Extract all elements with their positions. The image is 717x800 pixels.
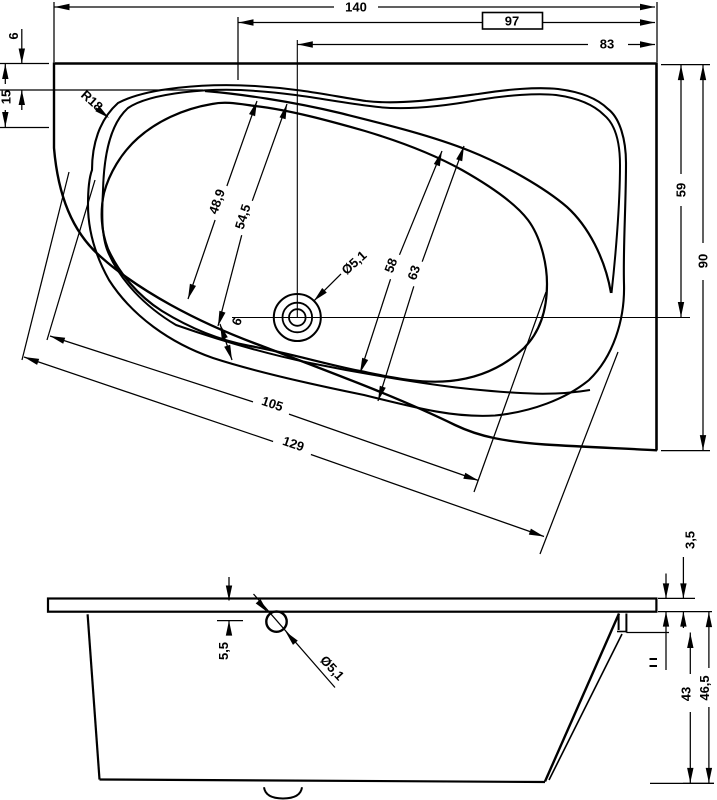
svg-text:97: 97 <box>505 14 519 29</box>
svg-text:5,5: 5,5 <box>216 642 231 660</box>
svg-text:6: 6 <box>6 32 21 39</box>
svg-text:3,5: 3,5 <box>683 531 698 549</box>
svg-text:140: 140 <box>345 0 367 15</box>
svg-text:43: 43 <box>679 687 694 701</box>
svg-text:15: 15 <box>0 90 14 104</box>
svg-text:83: 83 <box>600 37 614 52</box>
svg-text:90: 90 <box>696 254 711 268</box>
svg-text:59: 59 <box>674 183 689 197</box>
svg-text:46,5: 46,5 <box>697 675 712 700</box>
